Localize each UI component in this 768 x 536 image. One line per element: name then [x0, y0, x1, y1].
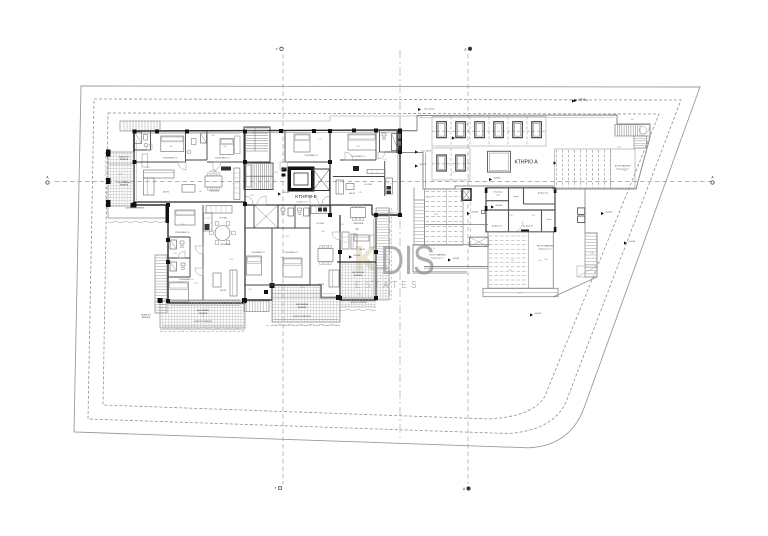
svg-text:ΣΑΛΟΝΙ: ΣΑΛΟΝΙ [163, 191, 170, 194]
svg-text:Γκαρντ.: Γκαρντ. [513, 196, 520, 198]
svg-text:2.20: 2.20 [173, 253, 176, 255]
svg-text:3.60: 3.60 [223, 146, 226, 148]
svg-text:10.80: 10.80 [434, 214, 438, 216]
svg-text:+166.80: +166.80 [495, 205, 503, 207]
svg-text:ΥΠΝΟΔΩΜΑΤΙΟ 01: ΥΠΝΟΔΩΜΑΤΙΟ 01 [179, 278, 194, 281]
svg-text:ΣΑΛΟΝΙ: ΣΑΛΟΝΙ [359, 248, 366, 251]
svg-text:+163.35: +163.35 [471, 211, 479, 213]
svg-text:ΚΤΗΡΙΟ Α: ΚΤΗΡΙΟ Α [514, 160, 538, 166]
svg-text:Γ: Γ [276, 47, 278, 51]
svg-text:4.25: 4.25 [300, 287, 303, 289]
svg-text:4.75: 4.75 [623, 170, 626, 172]
svg-text:1.73: 1.73 [464, 124, 467, 126]
svg-text:4.30: 4.30 [544, 259, 547, 261]
svg-text:+156.80: +156.80 [282, 192, 290, 194]
svg-text:Ανεβάρα 03: Ανεβάρα 03 [492, 225, 502, 228]
svg-text:1.15: 1.15 [248, 289, 251, 291]
svg-text:4.20: 4.20 [355, 229, 358, 231]
svg-text:ΚΟΥΖΙΝΑ: ΚΟΥΖΙΝΑ [316, 222, 324, 225]
svg-text:ΤΡΑΠΕΖΑΡΙΑ: ΤΡΑΠΕΖΑΡΙΑ [220, 243, 231, 246]
svg-text:ΚΟΥΖΙΝΑ: ΚΟΥΖΙΝΑ [219, 217, 227, 220]
svg-text:Γ: Γ [275, 487, 277, 491]
svg-text:ΒΕΡΑΝΤΑ: ΒΕΡΑΝΤΑ [298, 306, 307, 309]
svg-text:4.93: 4.93 [229, 259, 232, 261]
svg-text:+166.16: +166.16 [456, 136, 464, 138]
svg-text:+163.35: +163.35 [605, 211, 613, 213]
svg-text:Ανεβάρα 02: Ανεβάρα 02 [538, 192, 548, 195]
svg-text:ΒΕΡΑΝΤΑ: ΒΕΡΑΝΤΑ [120, 158, 129, 161]
svg-text:ΥΠΝΟΔΩΜΑΤΙΟ 01: ΥΠΝΟΔΩΜΑΤΙΟ 01 [163, 157, 178, 160]
svg-text:Διαμέρισμα Γ1: Διαμέρισμα Γ1 [431, 257, 445, 260]
svg-text:Πλυσταριό: Πλυσταριό [494, 191, 503, 194]
svg-text:1.45: 1.45 [357, 294, 360, 296]
svg-text:ROOF GARDEN: ROOF GARDEN [615, 165, 631, 168]
svg-text:7.43: 7.43 [517, 293, 520, 295]
svg-text:1.25: 1.25 [383, 159, 386, 161]
svg-text:2.35: 2.35 [509, 215, 512, 217]
svg-text:Γκαρντ.: Γκαρντ. [546, 219, 553, 221]
svg-text:ΥΠΝΟΔΩΜΑΤΙΟ 02: ΥΠΝΟΔΩΜΑΤΙΟ 02 [215, 157, 230, 160]
svg-text:6.70: 6.70 [427, 197, 430, 199]
svg-text:Residence 01: Residence 01 [226, 202, 237, 204]
svg-text:Διαμέρισμα Γ2: Διαμέρισμα Γ2 [539, 248, 553, 251]
svg-text:Ανεβάρα 01: Ανεβάρα 01 [523, 225, 533, 228]
svg-text:4.10: 4.10 [285, 236, 288, 238]
svg-text:3.30: 3.30 [179, 282, 182, 284]
svg-text:3.05: 3.05 [118, 174, 121, 176]
svg-text:ΤΡΑΠΕΖΑΡΙΑ: ΤΡΑΠΕΖΑΡΙΑ [209, 190, 220, 193]
svg-text:5.45: 5.45 [280, 257, 283, 259]
svg-text:1.50: 1.50 [451, 172, 454, 174]
svg-text:7.25: 7.25 [201, 316, 204, 318]
svg-text:1.20: 1.20 [496, 194, 500, 196]
svg-text:ΑΚΑΛΥΠΤΗ ΒΕΡΑΝΤΑ: ΑΚΑΛΥΠΤΗ ΒΕΡΑΝΤΑ [293, 315, 311, 318]
svg-text:5.10: 5.10 [370, 281, 373, 283]
svg-text:3.40: 3.40 [321, 231, 324, 233]
svg-text:ΒΕΡΑΝΤΑ: ΒΕΡΑΝΤΑ [199, 312, 208, 315]
svg-text:+166.16: +166.16 [419, 164, 427, 166]
svg-text:1.80: 1.80 [211, 135, 214, 137]
svg-text:1.40: 1.40 [146, 167, 149, 169]
svg-text:4.47: 4.47 [617, 147, 620, 149]
svg-text:Τ.όψ. 166.16: Τ.όψ. 166.16 [421, 150, 431, 153]
svg-text:2.75: 2.75 [194, 283, 197, 285]
svg-text:+163.35: +163.35 [628, 241, 636, 243]
svg-text:Residence 02: Residence 02 [297, 202, 308, 204]
svg-text:ΚΑΛΥΜΜΕΝΗ: ΚΑΛΥΜΜΕΝΗ [296, 303, 309, 306]
svg-text:2.75: 2.75 [318, 139, 321, 141]
svg-text:9.25: 9.25 [274, 172, 277, 174]
svg-text:+163.35: +163.35 [452, 258, 460, 260]
svg-text:5.35: 5.35 [590, 253, 593, 255]
svg-text:1.70: 1.70 [510, 260, 513, 262]
svg-text:ΒΕΡΑΝΤΑ: ΒΕΡΑΝΤΑ [142, 316, 151, 319]
svg-text:3.43: 3.43 [630, 119, 633, 121]
svg-text:ΥΠΝΟΔΩΜΑΤΙΟ 02: ΥΠΝΟΔΩΜΑΤΙΟ 02 [175, 231, 190, 234]
svg-text:ΤΡΑΠΕΖΑΡΙΑ: ΤΡΑΠΕΖΑΡΙΑ [353, 222, 364, 225]
svg-text:3.60: 3.60 [356, 146, 359, 148]
svg-text:+156.80: +156.80 [353, 255, 361, 257]
svg-text:7.60: 7.60 [508, 270, 511, 272]
svg-text:+158.80: +158.80 [493, 177, 501, 179]
svg-text:ΒΕΡΑΝΤΑ: ΒΕΡΑΝΤΑ [354, 274, 363, 277]
svg-text:3.10: 3.10 [358, 192, 361, 194]
svg-text:ΣΑΛΟΝΙ: ΣΑΛΟΝΙ [349, 192, 356, 195]
svg-text:ROOF GARDEN: ROOF GARDEN [429, 254, 446, 257]
svg-text:3.60: 3.60 [169, 146, 172, 148]
svg-text:ΣΑΛΟΝΙ: ΣΑΛΟΝΙ [220, 289, 227, 292]
svg-text:3.60: 3.60 [181, 224, 184, 226]
svg-text:1.70: 1.70 [431, 248, 434, 250]
svg-text:4.30: 4.30 [538, 260, 541, 262]
svg-text:+160.50: +160.50 [534, 313, 542, 315]
svg-text:ΑΚΑΛΥΠΤΗ ΒΕΡΑΝΤΑ: ΑΚΑΛΥΠΤΗ ΒΕΡΑΝΤΑ [194, 320, 212, 323]
svg-text:ΚΟΥΖΙΝΑ: ΚΟΥΖΙΝΑ [209, 170, 217, 173]
svg-text:ΚΑΛΥΜΜΕΝΗ: ΚΑΛΥΜΜΕΝΗ [352, 271, 364, 274]
svg-text:ROOF GARDEN: ROOF GARDEN [537, 245, 554, 248]
svg-text:ΣΑΛΟΝΙ: ΣΑΛΟΝΙ [318, 283, 325, 286]
svg-text:ΒΕΡΑΝΤΑ: ΒΕΡΑΝΤΑ [120, 184, 129, 187]
svg-text:0.90: 0.90 [340, 224, 343, 226]
svg-text:5.45: 5.45 [198, 191, 201, 193]
svg-text:ΚΑΛΥΜΜΕΝΗ: ΚΑΛΥΜΜΕΝΗ [197, 309, 210, 312]
svg-text:Τ.όψ. 166.16: Τ.όψ. 166.16 [424, 108, 434, 111]
svg-text:1.20: 1.20 [250, 195, 253, 197]
svg-text:ΚΟΥΖΙΝΑ: ΚΟΥΖΙΝΑ [364, 183, 372, 186]
svg-text:Τ.όψ. 166.16: Τ.όψ. 166.16 [578, 99, 588, 102]
svg-text:2.43: 2.43 [531, 215, 534, 217]
